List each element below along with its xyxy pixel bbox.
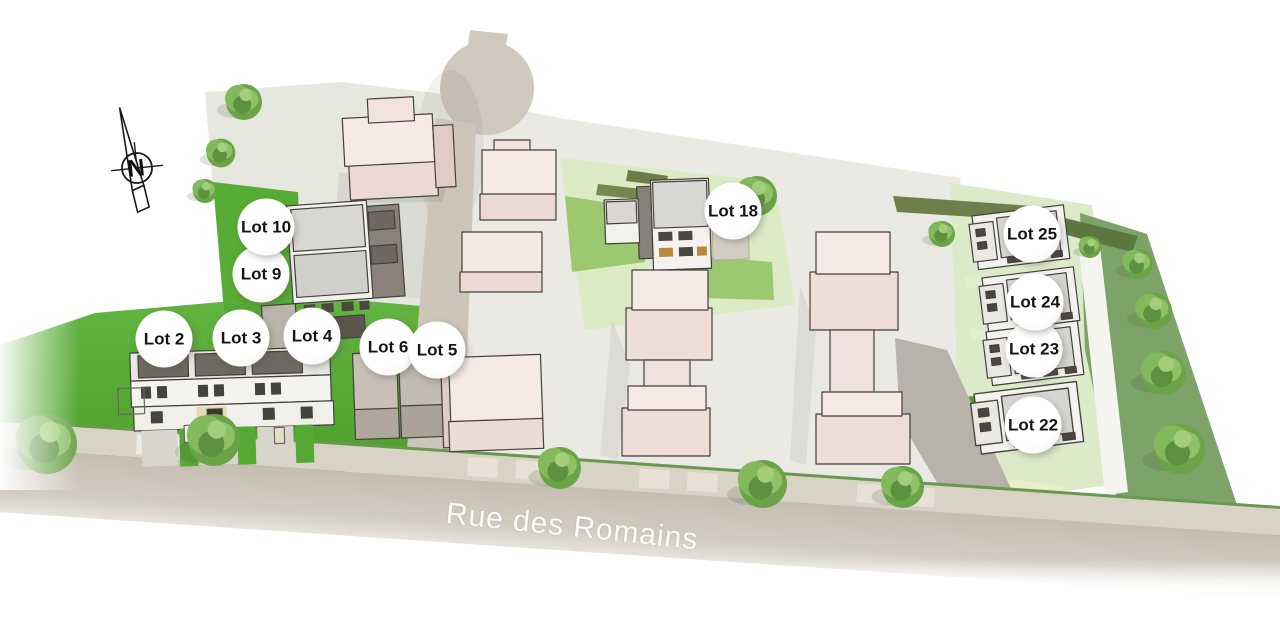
lot-marker-label: Lot 4 bbox=[292, 326, 333, 346]
site-plan: N Rue des Romains Lot 2 Lot 3 Lot 4 Lot … bbox=[0, 0, 1280, 623]
lot-marker-5[interactable]: Lot 5 bbox=[409, 322, 466, 379]
lot-marker-label: Lot 18 bbox=[708, 201, 758, 221]
lot-marker-label: Lot 10 bbox=[241, 217, 291, 237]
tree bbox=[199, 139, 235, 168]
tree bbox=[187, 179, 217, 203]
lot-marker-18[interactable]: Lot 18 bbox=[705, 183, 762, 240]
site-render bbox=[0, 0, 1280, 623]
compass-icon: N bbox=[95, 85, 185, 220]
lot-marker-10[interactable]: Lot 10 bbox=[238, 199, 295, 256]
lot-marker-3[interactable]: Lot 3 bbox=[213, 310, 270, 367]
lot-marker-label: Lot 25 bbox=[1007, 224, 1057, 244]
lot-marker-label: Lot 3 bbox=[221, 328, 262, 348]
lot-marker-label: Lot 5 bbox=[417, 340, 458, 360]
compass-north-label: N bbox=[126, 154, 146, 183]
lot-marker-label: Lot 9 bbox=[241, 264, 282, 284]
lot-marker-4[interactable]: Lot 4 bbox=[284, 308, 341, 365]
lot-marker-24[interactable]: Lot 24 bbox=[1007, 274, 1064, 331]
lot-marker-label: Lot 24 bbox=[1010, 292, 1060, 312]
lot-marker-25[interactable]: Lot 25 bbox=[1004, 206, 1061, 263]
lot-marker-2[interactable]: Lot 2 bbox=[136, 311, 193, 368]
lot-marker-label: Lot 2 bbox=[144, 329, 185, 349]
lot-marker-label: Lot 6 bbox=[368, 337, 409, 357]
lot-marker-label: Lot 22 bbox=[1008, 415, 1058, 435]
lot-marker-label: Lot 23 bbox=[1009, 339, 1059, 359]
lot-marker-22[interactable]: Lot 22 bbox=[1005, 397, 1062, 454]
